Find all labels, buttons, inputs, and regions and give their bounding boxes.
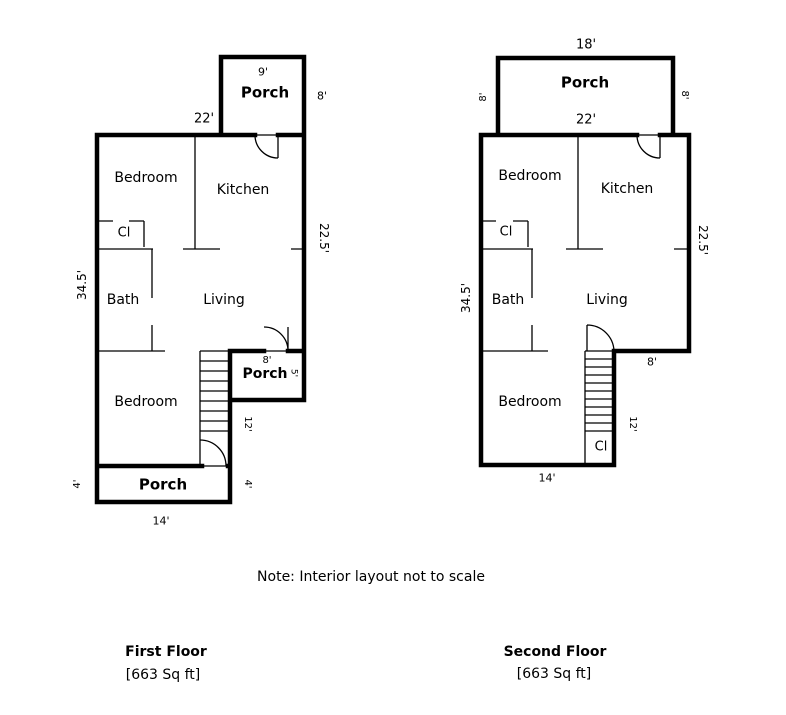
first-floor-dim-main-width: 22' bbox=[194, 113, 214, 126]
first-floor-dim-top-porch-width: 9' bbox=[258, 67, 268, 78]
first-floor-dim-bottom-porch-depth-left: 4' bbox=[73, 479, 83, 488]
first-floor-room-label-bedroom-upper: Bedroom bbox=[114, 171, 177, 185]
first-floor-caption-title: First Floor bbox=[125, 644, 207, 660]
first-floor-dim-stairs-height: 12' bbox=[242, 416, 252, 431]
first-floor-room-label-kitchen: Kitchen bbox=[217, 183, 270, 197]
floorplan-drawing bbox=[0, 0, 786, 715]
second-floor-dim-notch-width: 8' bbox=[647, 357, 657, 368]
scale-note: Note: Interior layout not to scale bbox=[257, 569, 485, 585]
first-floor-dim-top-porch-depth: 8' bbox=[317, 91, 327, 102]
second-floor-room-label-living: Living bbox=[586, 293, 628, 307]
second-floor-room-label-closet-lower: Cl bbox=[595, 441, 608, 454]
second-floor-dim-right-height: 22.5' bbox=[697, 225, 709, 255]
floorplan-page: 9'Porch8'22'BedroomKitchenCl34.5'BathLiv… bbox=[0, 0, 786, 715]
first-floor-room-label-mid-porch: Porch bbox=[242, 367, 287, 381]
first-floor-dim-bottom-porch-depth-right: 4' bbox=[242, 479, 252, 488]
first-floor-room-label-bottom-porch: Porch bbox=[139, 478, 187, 493]
first-floor-room-label-closet: Cl bbox=[118, 227, 131, 240]
second-floor-dim-top-porch-depth-right: 8' bbox=[679, 90, 689, 99]
second-floor-dim-top-porch-width: 18' bbox=[576, 39, 596, 52]
first-floor-dim-bottom-porch-width: 14' bbox=[152, 516, 169, 527]
second-floor-room-label-top-porch: Porch bbox=[561, 76, 609, 91]
first-floor-room-label-top-porch: Porch bbox=[241, 86, 289, 101]
first-floor-stairs bbox=[200, 351, 230, 464]
first-floor-room-label-living: Living bbox=[203, 293, 245, 307]
second-floor-caption-title: Second Floor bbox=[504, 644, 607, 660]
first-floor-room-label-bedroom-lower: Bedroom bbox=[114, 395, 177, 409]
second-floor-room-label-bedroom-upper: Bedroom bbox=[498, 169, 561, 183]
second-floor-caption-area: [663 Sq ft] bbox=[517, 666, 592, 682]
second-floor-room-label-closet-upper: Cl bbox=[500, 226, 513, 239]
second-floor-dim-main-width: 22' bbox=[576, 114, 596, 127]
first-floor-room-label-bath: Bath bbox=[107, 293, 140, 307]
second-floor-dim-bottom-width: 14' bbox=[538, 473, 555, 484]
first-floor-dim-mid-porch-width: 8' bbox=[262, 356, 271, 366]
first-floor-caption-area: [663 Sq ft] bbox=[126, 667, 201, 683]
first-floor-dim-left-height: 34.5' bbox=[76, 270, 88, 300]
first-floor-dim-mid-porch-depth: 5' bbox=[289, 369, 298, 377]
second-floor-dim-stairs-height: 12' bbox=[627, 416, 637, 431]
second-floor-door-arcs bbox=[587, 135, 660, 351]
second-floor-room-label-bath: Bath bbox=[492, 293, 525, 307]
second-floor-room-label-kitchen: Kitchen bbox=[601, 182, 654, 196]
second-floor-dim-top-porch-depth-left: 8' bbox=[479, 92, 489, 101]
first-floor-dim-right-height: 22.5' bbox=[318, 223, 330, 253]
second-floor-room-label-bedroom-lower: Bedroom bbox=[498, 395, 561, 409]
second-floor-dim-left-height: 34.5' bbox=[460, 283, 472, 313]
